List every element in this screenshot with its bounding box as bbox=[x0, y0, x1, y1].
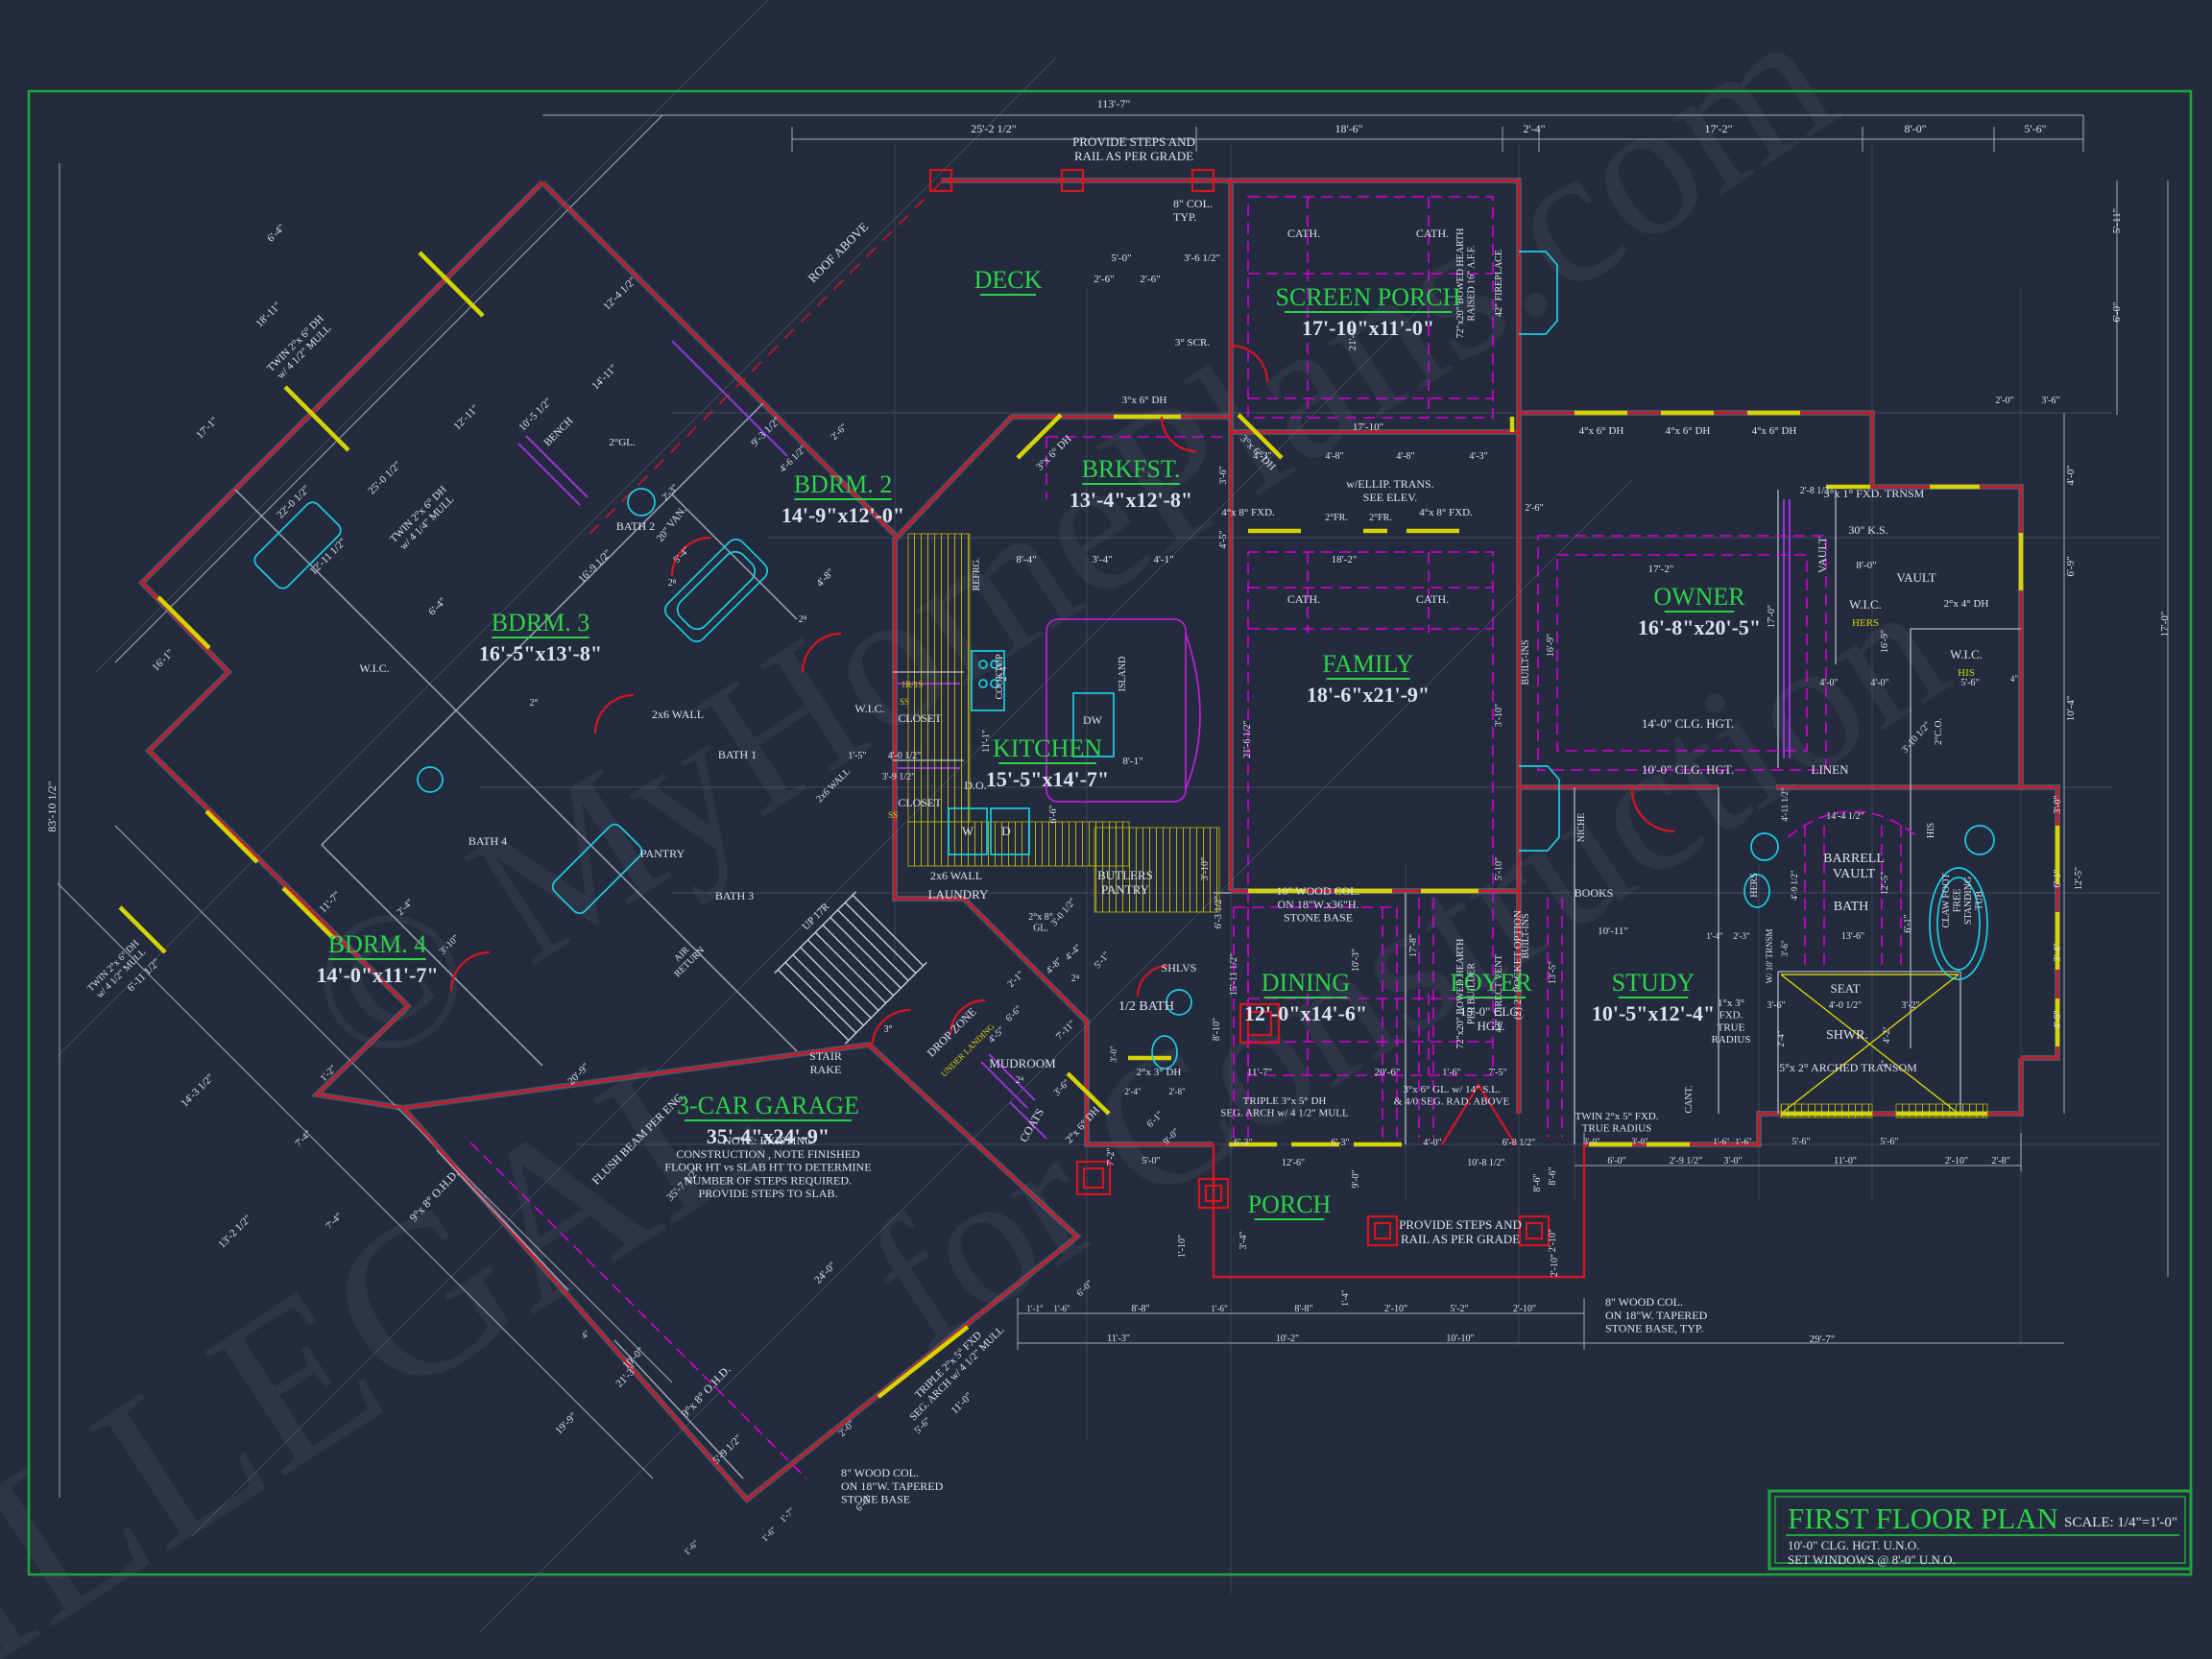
dimension-or-note: 1'-7" bbox=[778, 1505, 797, 1525]
dimension-or-note: 17'-10" bbox=[1353, 421, 1383, 433]
dimension-or-note: 2'-0" bbox=[837, 1419, 857, 1439]
dimension-or-note: 4" bbox=[2010, 674, 2019, 684]
dimension-or-note: 10'-2" bbox=[1276, 1334, 1299, 1344]
dimension-or-note: 83'-10 1/2" bbox=[45, 781, 59, 831]
dimension-or-note: 7'-5" bbox=[1488, 1068, 1506, 1078]
dimension-or-note: 4'-0" bbox=[1423, 1138, 1441, 1148]
dimension-or-note: 2'-10" bbox=[1945, 1156, 1968, 1166]
dimension-or-note: 12'-4 1/2" bbox=[601, 275, 638, 312]
title-block: FIRST FLOOR PLAN SCALE: 1/4"=1'-0" 10'-0… bbox=[1769, 1491, 2191, 1569]
dimension-or-note: BUTLERSPANTRY bbox=[1097, 868, 1153, 897]
dimension-or-note: 3° bbox=[884, 1024, 893, 1035]
dimension-or-note: 16'-9 1/2" bbox=[576, 547, 613, 585]
room-label-brkfst: BRKFST. bbox=[1082, 455, 1181, 483]
dimension-or-note: BATH 3 bbox=[715, 889, 754, 902]
dimension-or-note: 6'-8 1/2" bbox=[1503, 1138, 1536, 1148]
dimension-or-note: D.O. bbox=[964, 779, 986, 792]
dimension-or-note: BUILT-INS bbox=[1521, 639, 1531, 685]
dimension-or-note: 2'-4" bbox=[1523, 122, 1545, 135]
room-size-3-car-garage: 35'-4"x24'-9" bbox=[707, 1124, 829, 1148]
dimension-or-note: 10'-5 1/2" bbox=[517, 396, 554, 433]
room-size-owner: 16'-8"x20'-5" bbox=[1638, 615, 1761, 639]
dimension-or-note: 6'-9" bbox=[2065, 556, 2077, 576]
dimension-or-note: 18'-2" bbox=[1332, 554, 1358, 565]
dimension-or-note: 8'-1" bbox=[1122, 756, 1142, 767]
plan-note-2: SET WINDOWS @ 8'-0" U.N.O. bbox=[1788, 1552, 1956, 1567]
dimension-or-note: 16'-1" bbox=[150, 647, 176, 673]
dimension-or-note: 2'-10" bbox=[1513, 1304, 1536, 1314]
room-size-dining: 12'-0"x14'-6" bbox=[1244, 1001, 1367, 1025]
dimension-or-note: 14'-11" bbox=[589, 362, 619, 392]
dimension-or-note: 8" COL.TYP. bbox=[1173, 197, 1213, 224]
dimension-or-note: 10'-10" bbox=[1446, 1334, 1474, 1344]
dimension-or-note: 6'-4" bbox=[426, 595, 448, 617]
dimension-or-note: 3'-0 1/2" bbox=[1049, 897, 1079, 928]
dimension-or-note: W.I.C. bbox=[854, 702, 884, 715]
dimension-or-note: 4°x 6° DH bbox=[1579, 425, 1624, 437]
dimension-or-note: D bbox=[1001, 824, 1010, 838]
dimension-or-note: 11'-0" bbox=[1834, 1156, 1857, 1166]
cad-floor-plan-viewport: © MyHomePlans.comfor ConstructionILLEGAL bbox=[0, 0, 2212, 1659]
dimension-or-note: 17'-0" bbox=[2159, 612, 2171, 637]
dimension-or-note: 5'-11" bbox=[2111, 208, 2123, 233]
dimension-or-note: 2'-1" bbox=[1006, 970, 1026, 990]
dimension-or-note: DW bbox=[1083, 713, 1103, 727]
dimension-or-note: 6'-3" bbox=[1234, 1138, 1252, 1148]
dimension-or-note: STAIRRAKE bbox=[809, 1049, 842, 1076]
dimension-or-note: 8'-6" bbox=[1532, 1173, 1543, 1191]
dimension-or-note: 3'-4" bbox=[2053, 943, 2063, 961]
dimension-or-note: 3'-10" bbox=[1494, 704, 1504, 727]
dimension-or-note: 2'-10" bbox=[1550, 1254, 1560, 1277]
room-label-bdrm-4: BDRM. 4 bbox=[328, 930, 427, 958]
room-label-foyer: FOYER bbox=[1450, 969, 1532, 997]
dimension-or-note: 5'-6" bbox=[2024, 122, 2046, 135]
dimension-or-note: 17'-0" bbox=[1767, 605, 1777, 628]
dimension-or-note: W.I.C. bbox=[1950, 647, 1983, 661]
dimension-or-note: 4°x 6° DH bbox=[1752, 425, 1797, 437]
dimension-or-note: 3'-9 1/2" bbox=[882, 772, 916, 782]
dimension-or-note: 3'-0" bbox=[1583, 1137, 1600, 1146]
dimension-or-note: SS bbox=[900, 697, 909, 707]
dimension-or-note: 10'-4" bbox=[2065, 696, 2077, 722]
dimension-or-note: 3° SCR. bbox=[1175, 337, 1210, 349]
watermark-text: © MyHomePlans.com bbox=[268, 0, 1869, 1113]
dimension-or-note: 113'-7" bbox=[1097, 97, 1131, 110]
dimension-or-note: HERS bbox=[1852, 617, 1879, 629]
dimension-or-note: 4'-8" bbox=[1045, 956, 1065, 976]
dimension-or-note: BATH 1 bbox=[718, 748, 757, 761]
dimension-or-note: BATH 2 bbox=[616, 519, 655, 533]
dimension-or-note: W bbox=[962, 824, 974, 838]
dimension-or-note: 1'-6" bbox=[1735, 1137, 1752, 1146]
dimension-or-note: w/ELLIP. TRANS.SEE ELEV. bbox=[1346, 477, 1433, 504]
dimension-or-note: 3'-0" bbox=[1631, 1137, 1648, 1146]
dimension-or-note: 2'-3" bbox=[1733, 931, 1750, 941]
dimension-or-note: 11'-3" bbox=[1107, 1334, 1130, 1344]
dimension-or-note: 17'-8" bbox=[1408, 934, 1419, 957]
dimension-or-note: VAULT bbox=[1896, 570, 1935, 585]
dimension-or-note: HIS bbox=[1926, 823, 1936, 838]
dimension-or-note: 10" WOOD COL.ON 18"W.x36"H.STONE BASE bbox=[1276, 884, 1359, 925]
dimension-or-note: 2'-6" bbox=[1140, 274, 1160, 285]
room-label-owner: OWNER bbox=[1653, 583, 1745, 611]
dimension-or-note: 1'-6" bbox=[1053, 1304, 1070, 1313]
room-size-bdrm-3: 16'-5"x13'-8" bbox=[479, 641, 602, 665]
dimension-or-note: CLOSET bbox=[898, 796, 942, 809]
dimension-or-note: MUDROOM bbox=[989, 1056, 1056, 1070]
dimension-or-note: 12'-11" bbox=[451, 402, 481, 432]
dimension-or-note: 6'-4" bbox=[265, 222, 287, 244]
dimension-or-note: 11'-7" bbox=[1247, 1067, 1272, 1078]
dimension-or-note: TWIN 2°x 5° FXD.TRUE RADIUS bbox=[1575, 1111, 1658, 1135]
dimension-or-note: 10'-0" CLG. HGT. bbox=[1642, 762, 1734, 777]
dimension-or-note: 2° bbox=[530, 698, 539, 709]
dimension-or-note: 20" VAN. bbox=[655, 504, 689, 544]
dimension-or-note: 2'-8" bbox=[1168, 1087, 1186, 1096]
dimension-or-note: BOOKS bbox=[1575, 886, 1614, 900]
dimension-or-note: 12'-5" bbox=[1880, 872, 1890, 895]
dimension-or-note: 4'-3" bbox=[1253, 451, 1271, 462]
dimension-or-note: 5'-6" bbox=[1791, 1137, 1810, 1147]
shower-glass bbox=[1781, 974, 1959, 1114]
dimension-or-note: 2'-6" bbox=[1525, 503, 1543, 514]
dimension-or-note: 8" WOOD COL.ON 18"W. TAPEREDSTONE BASE, … bbox=[1605, 1295, 1708, 1335]
dimension-or-note: LINEN bbox=[1812, 762, 1850, 777]
room-size-family: 18'-6"x21'-9" bbox=[1307, 683, 1430, 707]
room-label-deck: DECK bbox=[974, 266, 1043, 294]
dimension-or-note: 5'-10" bbox=[1494, 857, 1504, 880]
dimension-or-note: 17'-2" bbox=[1648, 564, 1674, 575]
dimension-or-note: 4'-0" bbox=[2065, 465, 2077, 485]
plan-title: FIRST FLOOR PLAN bbox=[1788, 1502, 2058, 1535]
dimension-or-note: 2'-4" bbox=[1776, 1030, 1786, 1047]
dimension-or-note: 2'-6" bbox=[1094, 274, 1114, 285]
dimension-or-note: 3°x 6° GL. w/ 14" S.L.& 4/0 SEG. RAD. AB… bbox=[1394, 1084, 1510, 1108]
dimension-or-note: 2x6 WALL bbox=[930, 869, 982, 882]
dimension-or-note: 10'-11" bbox=[1598, 926, 1628, 937]
dimension-or-note: 4'-4" bbox=[1064, 943, 1084, 963]
dimension-or-note: 4'-11 1/2" bbox=[1780, 787, 1790, 822]
dimension-or-note: 3'-4" bbox=[1092, 554, 1112, 565]
dimension-or-note: AIRRETURN bbox=[664, 937, 707, 979]
dimension-or-note: 3'-10" bbox=[1200, 857, 1211, 880]
dimension-or-note: 3'-2" bbox=[1901, 1000, 1919, 1011]
dimension-or-note: 24'-0" bbox=[812, 1260, 838, 1286]
room-label-study: STUDY bbox=[1612, 969, 1695, 997]
dimension-or-note: 4°x 6° DH bbox=[1666, 425, 1711, 437]
dimension-or-note: 1'-2" bbox=[319, 1064, 339, 1084]
dimension-or-note: 22'-0 1/2" bbox=[275, 483, 312, 520]
dimension-or-note: 1R/1S bbox=[902, 680, 924, 689]
dimension-or-note: 3'-6" bbox=[1218, 466, 1229, 484]
dimension-or-note: CLAW FOOTFREESTANDINGTUB bbox=[1941, 873, 1985, 927]
room-label-kitchen: KITCHEN bbox=[993, 734, 1102, 762]
dimension-or-note: W.I.C. bbox=[1849, 597, 1882, 612]
dimension-or-note: 14'-3 1/2" bbox=[179, 1071, 216, 1109]
dimension-or-note: 5'-4" bbox=[672, 545, 692, 565]
dimension-or-note: 8'-10" bbox=[1212, 1018, 1222, 1041]
plan-scale: SCALE: 1/4"=1'-0" bbox=[2064, 1515, 2177, 1530]
dimension-or-note: 5'-0" bbox=[1142, 1156, 1160, 1166]
dimension-or-note: 18'-11" bbox=[253, 300, 283, 329]
dimension-or-note: 42" FIREPLACE bbox=[1494, 250, 1504, 317]
dimension-or-note: PROVIDE STEPS ANDRAIL AS PER GRADE bbox=[1399, 1217, 1522, 1246]
dimension-or-note: 21'-6 1/2" bbox=[1242, 720, 1253, 758]
dimension-or-note: 6'-1" bbox=[2053, 869, 2063, 887]
dimension-or-note: CATH. bbox=[1416, 227, 1449, 240]
room-size-bdrm-2: 14'-9"x12'-0" bbox=[781, 503, 904, 527]
dimension-or-note: 4'-0 1/2" bbox=[888, 751, 922, 761]
dimension-or-note: 4'-8" bbox=[1325, 451, 1343, 462]
dimension-or-note: TWIN 2°x 6° DHw/ 4 1/4" MULL bbox=[388, 484, 458, 554]
dimension-or-note: 4'-0" bbox=[1870, 678, 1888, 688]
dimension-or-note: VAULT bbox=[1815, 536, 1829, 573]
dimension-or-note: 9'-3 1/2" bbox=[749, 415, 782, 448]
dimension-or-note: 3°x 1° FXD. TRNSM bbox=[1824, 487, 1925, 500]
dimension-or-note: 2'-10" bbox=[1384, 1304, 1407, 1314]
dimension-or-note: 2'-9 1/2" bbox=[1670, 1156, 1703, 1166]
dimension-or-note: 30" K.S. bbox=[1848, 523, 1887, 537]
dimension-or-note: 14'-0" CLG. HGT. bbox=[1642, 716, 1734, 731]
dimension-or-note: SEAT bbox=[1830, 981, 1860, 996]
dimension-or-note: SHWR. bbox=[1826, 1028, 1868, 1043]
room-label-bdrm-3: BDRM. 3 bbox=[492, 609, 590, 637]
dimension-or-note: BATH 4 bbox=[469, 834, 507, 848]
dimension-or-note: 3'-0" bbox=[2053, 795, 2063, 813]
dimension-or-note: W/ 10' TRNSM bbox=[1765, 929, 1774, 984]
dimension-or-note: TWIN 2°x 6° DHw/ 4 1/2" MULL bbox=[85, 938, 149, 1001]
dimension-or-note: 5'-2" bbox=[1450, 1304, 1468, 1314]
dimension-or-note: 3'-6 1/2" bbox=[1184, 252, 1220, 264]
dimension-or-note: 25'-2 1/2" bbox=[971, 122, 1016, 135]
dimension-or-note: 5'-0" bbox=[1111, 252, 1131, 264]
dimension-or-note: 2'-0" bbox=[1995, 396, 2013, 406]
dimension-or-note: 3'-0" bbox=[1723, 1156, 1742, 1166]
dimension-or-note: 4'-0" bbox=[1819, 678, 1838, 688]
dimension-or-note: 8" WOOD COL.ON 18"W. TAPEREDSTONE BASE bbox=[841, 1466, 944, 1506]
dimension-or-note: 13'-2 1/2" bbox=[216, 1213, 253, 1250]
dimension-or-note: 7'-11" bbox=[1054, 1019, 1078, 1043]
dimension-or-note: 2⁴ bbox=[1016, 1075, 1024, 1086]
dimension-or-note: 1°x 3°FXD.TRUERADIUS bbox=[1712, 998, 1751, 1046]
dimension-or-note: 3'-0" bbox=[1109, 1046, 1118, 1063]
dimension-or-note: 1'-6" bbox=[682, 1538, 701, 1557]
room-size-bdrm-4: 14'-0"x11'-7" bbox=[316, 963, 438, 987]
dimension-or-note: 2⁸ bbox=[799, 614, 807, 625]
dimension-or-note: 13'-5" bbox=[1548, 961, 1558, 984]
dimension-or-note: 2'-4" bbox=[1124, 1087, 1142, 1096]
dimension-or-note: 5'-1" bbox=[1093, 950, 1113, 971]
dimension-or-note: 6'-1" bbox=[1903, 914, 1913, 932]
dimension-or-note: 3'-4" bbox=[1238, 1231, 1249, 1249]
dimension-or-note: 2⁸ bbox=[668, 578, 677, 589]
dimension-or-note: CATH. bbox=[1287, 227, 1320, 240]
room-label-family: FAMILY bbox=[1322, 650, 1413, 678]
dimension-or-note: 5°x 2° ARCHED TRANSOM bbox=[1779, 1061, 1917, 1074]
dimension-or-note: 12'-11 1/2" bbox=[307, 536, 349, 577]
dimension-or-note: SHLVS bbox=[1162, 961, 1197, 974]
dimension-or-note: 10'-8 1/2" bbox=[1467, 1158, 1505, 1168]
dimension-or-note: 2°FR. bbox=[1325, 513, 1348, 523]
dimension-or-note: CATH. bbox=[1416, 592, 1449, 606]
dimension-or-note: 11'-0" bbox=[949, 1390, 974, 1416]
dimension-or-note: 25'-0 1/2" bbox=[366, 459, 403, 496]
dimension-or-note: 2⁴ bbox=[1071, 974, 1080, 984]
dimension-or-note: 11'-1" bbox=[981, 730, 992, 753]
dimension-or-note: 6'-6" bbox=[1048, 805, 1059, 823]
dimension-or-note: 1'-6" bbox=[759, 1525, 779, 1544]
dimension-or-note: 4'-3" bbox=[1469, 451, 1487, 462]
dimension-or-note: 8'-0" bbox=[1904, 122, 1926, 135]
room-label-porch: PORCH bbox=[1248, 1190, 1332, 1218]
room-size-screen-porch: 17'-10"x11'-0" bbox=[1302, 316, 1434, 340]
dimension-or-note: 13'-6" bbox=[1841, 931, 1864, 942]
dimension-or-note: 3'-6" bbox=[1767, 1000, 1785, 1011]
dimension-or-note: 2'-6" bbox=[829, 422, 850, 443]
dimension-or-note: 7'-2" bbox=[1106, 1147, 1117, 1166]
dimension-or-note: 3°x 6° DH bbox=[1122, 395, 1167, 406]
dimension-or-note: PANTRY bbox=[640, 847, 685, 860]
dimension-or-note: UP 17R bbox=[800, 901, 832, 933]
dimension-or-note: (2) 2° POCKET OPTION bbox=[1512, 910, 1524, 1020]
dimension-or-note: 6'-0" bbox=[1607, 1156, 1625, 1166]
dimension-or-note: BATH bbox=[1834, 900, 1869, 914]
dimension-or-note: 2x6 WALL bbox=[652, 708, 704, 721]
dimension-or-note: 6'-0" bbox=[2111, 301, 2123, 322]
dimension-or-note: REFRG. bbox=[972, 558, 982, 591]
dimension-or-note: 2'-10" bbox=[1548, 1229, 1558, 1252]
dimension-or-note: 17'-1" bbox=[194, 415, 220, 441]
dimension-or-note: 1'-1" bbox=[1026, 1304, 1044, 1313]
dimension-or-note: 1'-6" bbox=[1211, 1304, 1228, 1313]
dimension-or-note: 4'-2" bbox=[1882, 1026, 1891, 1044]
room-label-3-car-garage: 3-CAR GARAGE bbox=[677, 1092, 859, 1119]
dimension-or-note: NICHE bbox=[1576, 813, 1587, 843]
dimension-or-note: 2°x 4° DH bbox=[1944, 598, 1989, 610]
dimension-or-note: 6'-3" bbox=[1331, 1138, 1349, 1148]
dimension-or-note: BARRELLVAULT bbox=[1823, 852, 1885, 881]
dimension-or-note: 4'-5" bbox=[1218, 530, 1229, 548]
dimension-or-note: 4'-0 1/2" bbox=[1829, 1000, 1863, 1011]
dimension-or-note: HERS bbox=[1749, 873, 1760, 898]
dimension-or-note: 18'-6" bbox=[1334, 122, 1362, 135]
dimension-or-note: 12'-6" bbox=[1282, 1158, 1305, 1168]
dimension-or-note: 8'-0" bbox=[1856, 560, 1876, 571]
plan-note-1: 10'-0" CLG. HGT. U.N.O. bbox=[1788, 1538, 1919, 1552]
floor-plan-drawing: © MyHomePlans.comfor ConstructionILLEGAL bbox=[0, 0, 2212, 1659]
dimension-or-note: 20'-6" bbox=[1375, 1067, 1401, 1078]
dimension-or-note: 9'-0" bbox=[1351, 1169, 1361, 1188]
dimension-or-note: 4°x 8° FXD. bbox=[1221, 507, 1275, 518]
dimension-or-note: 1'-6" bbox=[1713, 1137, 1730, 1146]
dimension-or-note: 4'-1" bbox=[1153, 554, 1173, 565]
dimension-or-note: 5'-6" bbox=[1880, 1137, 1898, 1147]
dimension-or-note: 1'-4" bbox=[1340, 1289, 1350, 1307]
dimension-or-note: COOKTOP bbox=[995, 654, 1005, 699]
dimension-or-note: CLOSET bbox=[898, 711, 942, 725]
dimension-or-note: 2'-8 1/2" bbox=[1800, 486, 1834, 496]
dimension-or-note: 4'-6" bbox=[2053, 1010, 2063, 1028]
dimension-or-note: 1'-6" bbox=[1442, 1068, 1460, 1078]
dimension-or-note: CATH. bbox=[1287, 592, 1320, 606]
dimension-or-note: 3'-6" bbox=[1780, 940, 1790, 957]
dimension-or-note: 8'-4" bbox=[1016, 554, 1036, 565]
dimension-or-note: ISLAND bbox=[1118, 657, 1128, 692]
dimension-or-note: 4'-9 1/2" bbox=[1790, 870, 1799, 900]
dimension-or-note: W.I.C. bbox=[359, 661, 389, 675]
dimension-or-note: 12'-5" bbox=[2074, 867, 2084, 890]
dimension-or-note: 2°x 3° DH bbox=[1137, 1067, 1182, 1078]
dimension-or-note: 7'-4" bbox=[294, 1129, 314, 1149]
dimension-or-note: PROVIDE STEPS ANDRAIL AS PER GRADE bbox=[1072, 134, 1195, 163]
dimension-or-note: 16'-9" bbox=[1546, 634, 1556, 657]
dimension-or-note: 6'-6" bbox=[1004, 1004, 1024, 1024]
dimension-or-note: TWIN 2°x 6° DHw/ 4 1/2" MULL bbox=[265, 313, 335, 383]
dimension-or-note: 4°x 8° FXD. bbox=[1419, 507, 1473, 518]
stairs bbox=[775, 892, 926, 1044]
dimension-or-note: 3'-6" bbox=[2041, 396, 2059, 406]
dimension-or-note: BENCH bbox=[541, 415, 575, 448]
room-size-brkfst: 13'-4"x12'-8" bbox=[1070, 488, 1192, 512]
dimension-or-note: LAUNDRY bbox=[928, 887, 989, 902]
room-label-screen-porch: SCREEN PORCH bbox=[1276, 283, 1461, 311]
room-label-dining: DINING bbox=[1262, 969, 1350, 997]
dimension-or-note: 9°x 8° O.H.D. bbox=[679, 1362, 733, 1420]
dimension-or-note: 8'-8" bbox=[1294, 1304, 1312, 1314]
dimension-or-note: 5'-6" bbox=[1960, 678, 1979, 688]
dimension-or-note: 1'-5" bbox=[848, 751, 866, 761]
dimension-or-note: CANT. bbox=[1684, 1086, 1695, 1114]
dimension-or-note: 19'-9" bbox=[553, 1410, 579, 1436]
dimension-or-note: 29'-7" bbox=[1810, 1334, 1836, 1345]
dimension-or-note: 1'-10" bbox=[1177, 1235, 1188, 1258]
room-label-bdrm-2: BDRM. 2 bbox=[794, 470, 893, 498]
dimension-or-note: 16'-9" bbox=[1880, 630, 1890, 653]
dimension-or-note: 8'-8" bbox=[1131, 1304, 1149, 1314]
room-size-study: 10'-5"x12'-4" bbox=[1592, 1001, 1715, 1025]
dimension-or-note: 6'-3 1/2" bbox=[1214, 896, 1224, 929]
dimension-or-note: 2°C.O. bbox=[1934, 718, 1944, 745]
dimension-or-note: 1/2 BATH bbox=[1118, 999, 1174, 1014]
dimension-or-note: 8'-6" bbox=[1548, 1166, 1558, 1185]
room-size-kitchen: 15'-5"x14'-7" bbox=[986, 767, 1109, 791]
dimension-or-note: 17'-2" bbox=[1704, 122, 1732, 135]
dimension-or-note: 4'-8" bbox=[1396, 451, 1414, 462]
dimension-or-note: 1'-4" bbox=[1706, 931, 1723, 941]
dimension-or-note: 2°FR. bbox=[1369, 513, 1392, 523]
dimension-or-note: 10'-3" bbox=[1351, 949, 1361, 972]
dimension-or-note: 2'-8" bbox=[1991, 1156, 2009, 1166]
dimension-or-note: 2°GL. bbox=[609, 437, 636, 448]
dimension-or-note: 14'-4 1/2" bbox=[1826, 811, 1864, 822]
dimension-or-note: SS bbox=[888, 810, 898, 820]
dimension-or-note: 15'-11 1/2" bbox=[1229, 953, 1239, 996]
